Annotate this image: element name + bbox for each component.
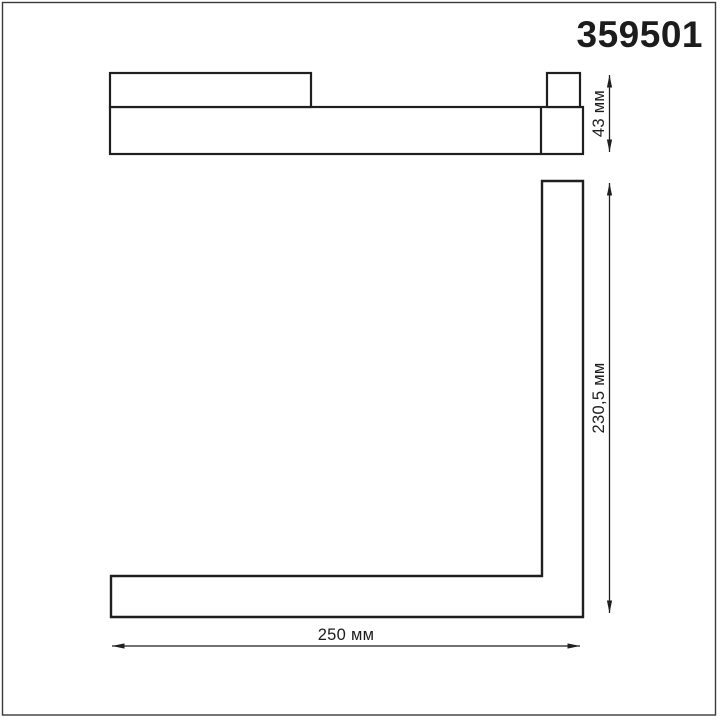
arrow-up-icon — [607, 75, 612, 88]
side-view — [110, 73, 583, 154]
article-number-group: 359501 — [577, 14, 703, 55]
arrow-left-icon — [112, 643, 125, 648]
dimension-drawing-canvas: 359501 43 мм 230,5 мм — [0, 0, 720, 720]
technical-drawing-page: 359501 43 мм 230,5 мм — [0, 0, 720, 720]
dimension-43mm-label-group: 43 мм — [590, 90, 608, 137]
arrow-down-icon — [607, 140, 612, 153]
dimension-230mm-label-group: 230,5 мм — [590, 363, 608, 434]
front-view — [111, 181, 583, 617]
dim-label-230mm: 230,5 мм — [590, 363, 608, 434]
arrow-up-icon — [607, 183, 612, 196]
dim-label-43mm: 43 мм — [590, 90, 608, 137]
dim-label-250mm: 250 мм — [318, 626, 375, 644]
article-number: 359501 — [577, 14, 703, 55]
side-view-track-body — [110, 107, 583, 154]
arrow-right-icon — [568, 643, 581, 648]
front-view-l-profile — [111, 181, 583, 617]
dimension-250mm-label-group: 250 мм — [318, 626, 375, 644]
side-view-adapter-block — [547, 73, 580, 107]
dimension-250mm — [112, 643, 580, 648]
side-view-top-housing — [110, 73, 311, 107]
arrow-down-icon — [607, 601, 612, 614]
